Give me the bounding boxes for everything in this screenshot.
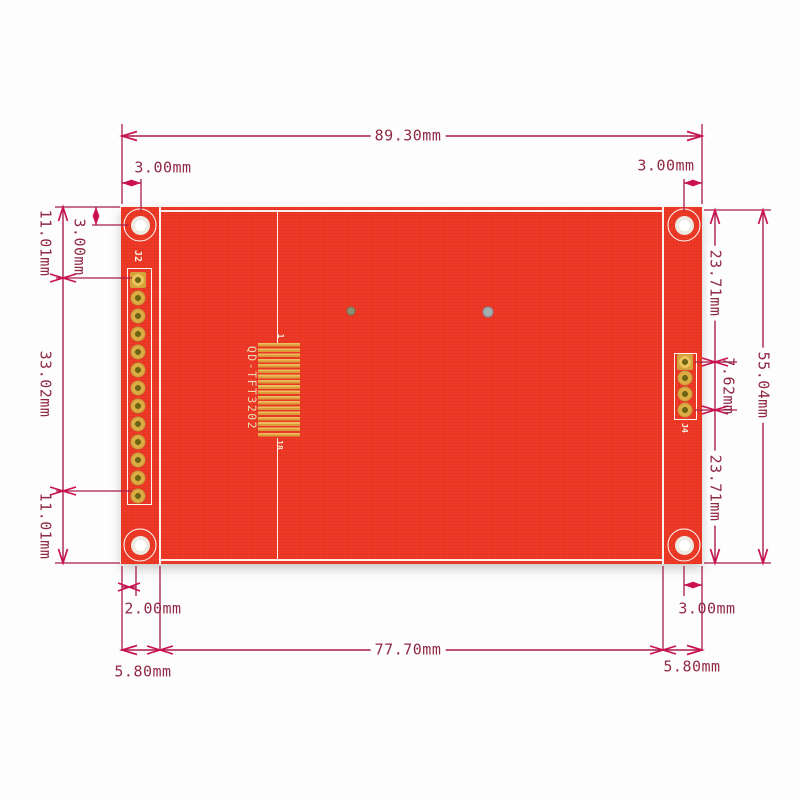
dim-board-width-label: 89.30mm [371,129,446,144]
dim-top-left-hole-offset: 3.00mm [134,161,191,176]
dim-bottom-right-strip: 5.80mm [663,660,720,675]
dim-bottom-left-strip: 5.80mm [114,665,171,680]
dim-right-header-span: 7.62mm [721,357,736,414]
dim-bottom-right-hole-offset: 3.00mm [678,602,735,617]
dim-left-vertical-hole-offset: 3.00mm [72,218,87,275]
dim-board-height-label: 55.04mm [756,348,771,423]
dim-left-header-span: 33.02mm [38,351,53,418]
dim-top-right-hole-offset: 3.00mm [637,159,694,174]
dim-right-bottom-segment: 23.71mm [708,451,723,526]
arrowheads [50,132,768,655]
extension-lines [55,124,771,651]
dim-left-top-segment: 11.01mm [38,210,53,277]
dim-bottom-left-hole-offset: 2.00mm [124,602,181,617]
dim-bottom-center-span: 77.70mm [371,643,446,658]
product-dimension-diagram: J2 J4 1 18 QD-TFT3202 [0,0,800,800]
dimension-lines [63,136,763,650]
dim-right-top-segment: 23.71mm [708,246,723,321]
diamond-arrows [93,180,702,589]
dim-left-bottom-segment: 11.01mm [38,493,53,560]
